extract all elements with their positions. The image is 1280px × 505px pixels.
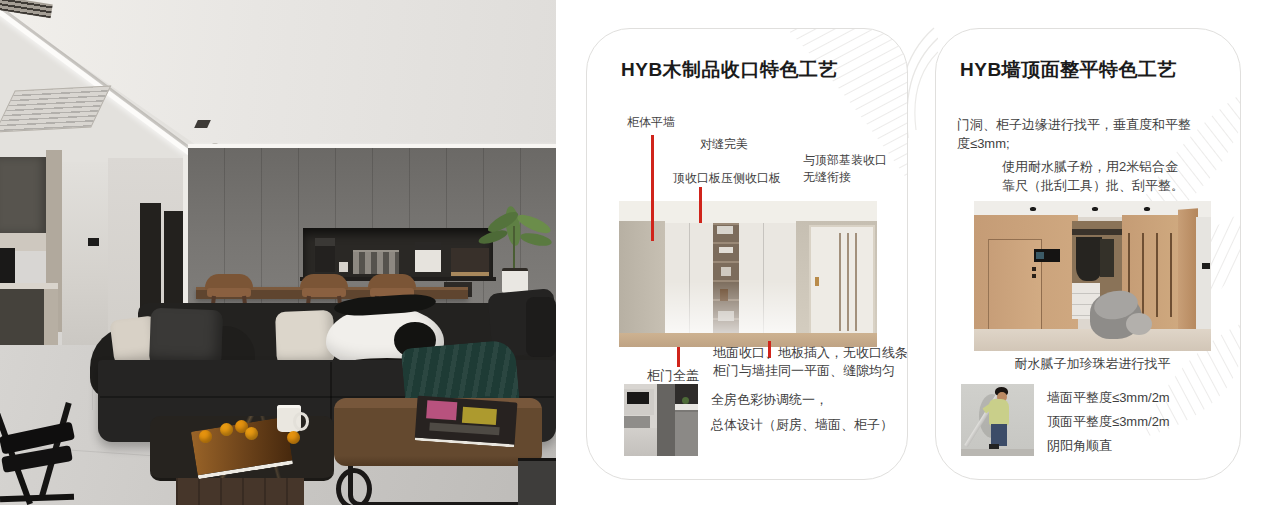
coffee-niche xyxy=(303,228,493,278)
callout-seam-perfect: 对缝完美 xyxy=(700,135,748,153)
note-floor-line2: 柜门与墙挂同一平面、缝隙均匀 xyxy=(713,362,895,380)
callout-cabinet-wall: 柜体平墙 xyxy=(627,113,675,131)
orange-fruit xyxy=(245,427,258,440)
para-door-leveling-line2: 度≤3mm; xyxy=(957,134,1010,153)
kitchen-upper-cabinets xyxy=(0,157,48,233)
orange-fruit xyxy=(220,423,233,436)
note-color-line2: 总体设计（厨房、墙面、柜子） xyxy=(711,416,893,434)
callout-top-joint-line1: 与顶部基装收口 xyxy=(803,151,887,169)
sling-chair xyxy=(0,403,88,505)
kitchen-base-side xyxy=(44,289,58,351)
tv-cabinet-corner xyxy=(518,458,556,505)
callout-door-cover: 柜门全盖 xyxy=(647,367,699,385)
metric-wall-flatness: 墙面平整度≤3mm/2m xyxy=(1047,389,1170,407)
niche-espresso xyxy=(415,242,441,272)
hall-door-1 xyxy=(140,203,161,311)
white-column xyxy=(62,162,108,364)
metric-ceiling-flatness: 顶面平整度≤3mm/2m xyxy=(1047,413,1170,431)
niche-cup-rack xyxy=(353,250,399,274)
callout-top-joint-line2: 无缝衔接 xyxy=(803,168,851,186)
coffee-mug xyxy=(277,405,301,432)
card-wall-craft: HYB墙顶面整平特色工艺 门洞、柜子边缘进行找平，垂直度和平整 度≤3mm; 使… xyxy=(935,28,1241,480)
magazine-walnut-table xyxy=(415,396,518,448)
interior-thumb-photo xyxy=(624,384,698,456)
para-putty-line2: 靠尺（批刮工具）批、刮平整。 xyxy=(1002,176,1184,195)
card-wood-craft: HYB木制品收口特色工艺 柜体平墙 对缝完美 顶收口板压侧收口板 与顶部基装收口… xyxy=(586,28,908,480)
note-color-line1: 全房色彩协调统一， xyxy=(711,391,828,409)
niche-mug xyxy=(339,262,348,272)
poster-canvas: HYB木制品收口特色工艺 柜体平墙 对缝完美 顶收口板压侧收口板 与顶部基装收口… xyxy=(0,0,1280,505)
render-door xyxy=(809,225,875,339)
plant-leaf xyxy=(519,231,553,248)
leader-line-door-cover xyxy=(677,347,680,367)
plant xyxy=(476,206,556,290)
leader-line-top-panel xyxy=(699,187,702,223)
pillow-darker-right xyxy=(526,297,556,357)
note-floor-line1: 地面收口、地板插入，无收口线条 xyxy=(713,344,908,362)
worker-photo xyxy=(961,384,1034,456)
wood-entry-photo xyxy=(974,201,1211,351)
coffee-machine-black xyxy=(0,248,15,284)
orange-fruit xyxy=(287,431,300,444)
para-putty-line1: 使用耐水腻子粉，用2米铝合金 xyxy=(1002,157,1178,176)
para-door-leveling-line1: 门洞、柜子边缘进行找平，垂直度和平整 xyxy=(957,115,1191,134)
leader-line-cabinet-wall xyxy=(651,135,654,241)
kitchen-base-cabinets xyxy=(0,289,44,351)
wardrobe-render-image xyxy=(619,201,877,347)
card1-title: HYB木制品收口特色工艺 xyxy=(621,57,838,83)
light-switch xyxy=(88,238,99,246)
caption-perlite-leveling: 耐水腻子加珍珠岩进行找平 xyxy=(974,355,1211,373)
orange-fruit xyxy=(199,430,212,443)
niche-machine xyxy=(315,238,335,272)
living-room-photo xyxy=(0,0,556,505)
metric-corners-straight: 阴阳角顺直 xyxy=(1047,437,1112,455)
plant-stem xyxy=(513,226,515,270)
plant-pot xyxy=(502,268,528,293)
callout-top-panel: 顶收口板压侧收口板 xyxy=(673,169,781,187)
card2-title: HYB墙顶面整平特色工艺 xyxy=(960,57,1177,83)
